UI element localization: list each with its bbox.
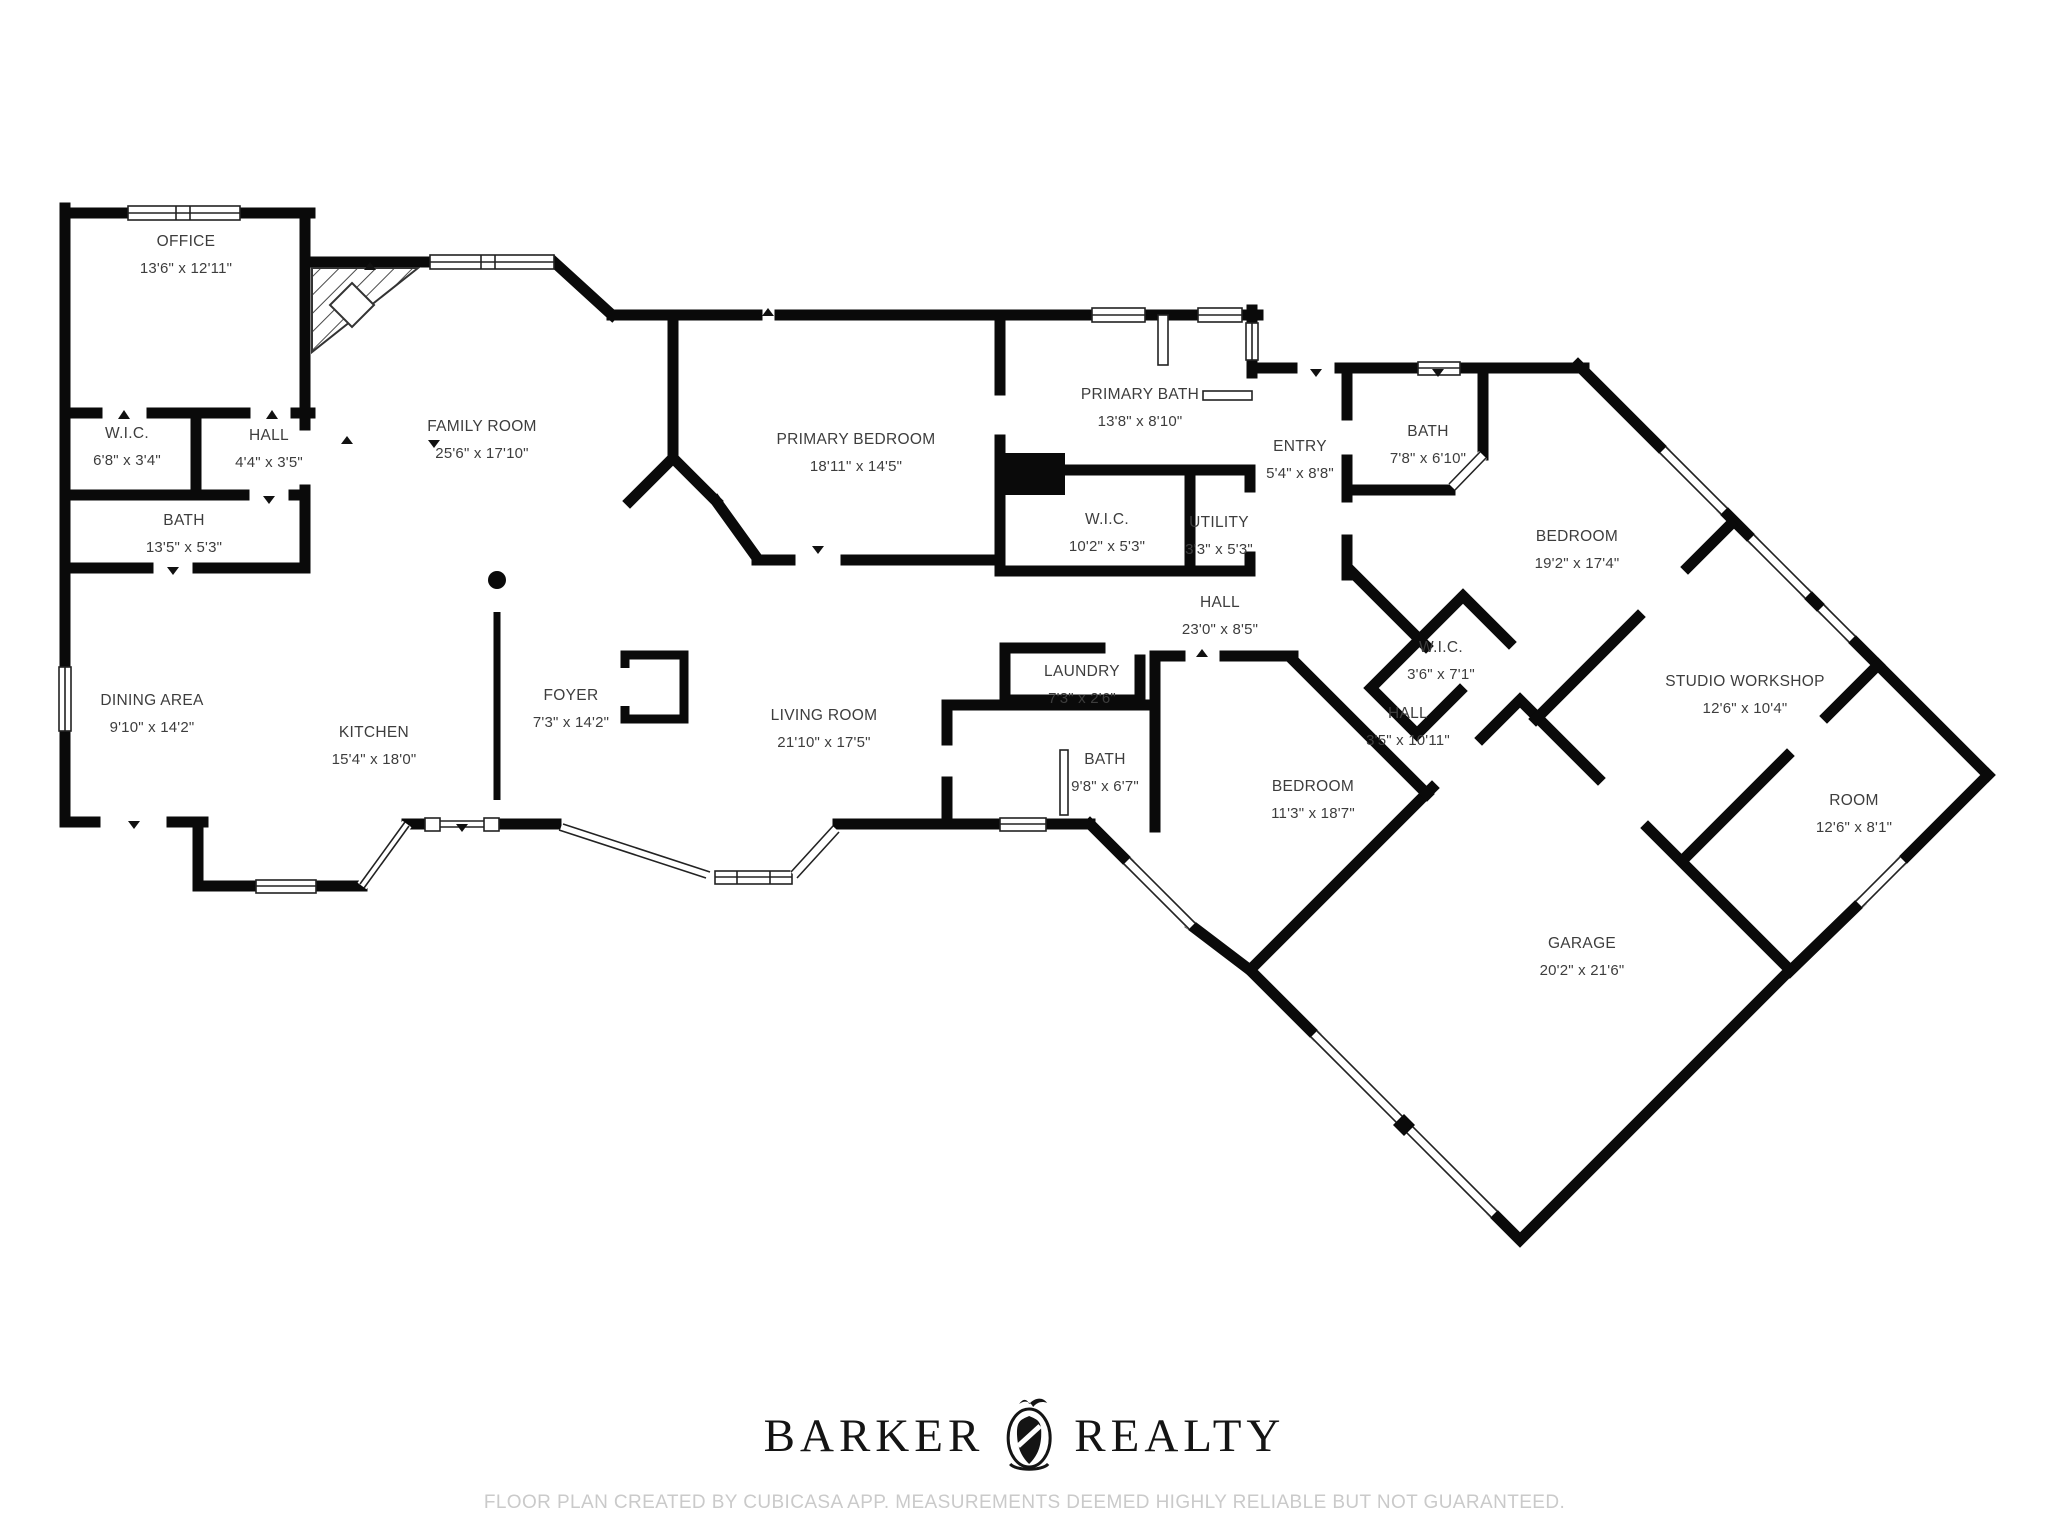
room-label-kitchen: KITCHEN15'4" x 18'0" <box>332 720 417 772</box>
room-label-primary-bath: PRIMARY BATH13'8" x 8'10" <box>1081 382 1199 434</box>
room-label-studio-workshop: STUDIO WORKSHOP12'6" x 10'4" <box>1665 669 1825 721</box>
room-label-bath1: BATH13'5" x 5'3" <box>146 508 222 560</box>
stairs-hatch <box>312 268 418 352</box>
closet-block <box>997 453 1065 495</box>
room-label-wic3: W.I.C.3'6" x 7'1" <box>1407 635 1475 687</box>
foyer-closet <box>625 655 684 719</box>
room-label-foyer: FOYER7'3" x 14'2" <box>533 683 609 735</box>
room-label-wic1: W.I.C.6'8" x 3'4" <box>93 421 161 473</box>
room-label-hall2: HALL23'0" x 8'5" <box>1182 590 1258 642</box>
room-label-bedroom2: BEDROOM19'2" x 17'4" <box>1535 524 1620 576</box>
room-label-living-room: LIVING ROOM21'10" x 17'5" <box>771 703 878 755</box>
column-post <box>488 571 506 589</box>
room-label-office: OFFICE13'6" x 12'11" <box>140 229 232 281</box>
room-label-utility: UTILITY3'3" x 5'3" <box>1185 510 1253 562</box>
room-label-bath2: BATH7'8" x 6'10" <box>1390 419 1466 471</box>
room-label-wic2: W.I.C.10'2" x 5'3" <box>1069 507 1145 559</box>
floor-plan-drawing <box>0 0 2049 1536</box>
room-label-garage: GARAGE20'2" x 21'6" <box>1540 931 1625 983</box>
room-label-entry: ENTRY5'4" x 8'8" <box>1266 434 1334 486</box>
brand-logo: BARKER REALTY <box>764 1394 1286 1478</box>
room-label-primary-bedroom: PRIMARY BEDROOM18'11" x 14'5" <box>777 427 936 479</box>
room-label-family-room: FAMILY ROOM25'6" x 17'10" <box>427 414 537 466</box>
room-label-hall1: HALL4'4" x 3'5" <box>235 423 303 475</box>
room-label-hall3: HALL3'5" x 10'11" <box>1366 701 1450 753</box>
brand-word-realty: REALTY <box>1074 1409 1285 1463</box>
diagonal-windows <box>360 447 1906 1217</box>
room-label-laundry: LAUNDRY7'3" x 2'6" <box>1044 659 1120 711</box>
brand-word-barker: BARKER <box>764 1409 985 1463</box>
room-label-room: ROOM12'6" x 8'1" <box>1816 788 1892 840</box>
room-label-bath3: BATH9'8" x 6'7" <box>1071 747 1139 799</box>
floor-plan-page: OFFICE13'6" x 12'11" W.I.C.6'8" x 3'4" H… <box>0 0 2049 1536</box>
disclaimer-text: FLOOR PLAN CREATED BY CUBICASA APP. MEAS… <box>484 1492 1565 1514</box>
heraldic-crest-icon <box>1000 1394 1058 1478</box>
room-label-dining-area: DINING AREA9'10" x 14'2" <box>100 688 203 740</box>
room-label-bedroom3: BEDROOM11'3" x 18'7" <box>1271 774 1355 826</box>
